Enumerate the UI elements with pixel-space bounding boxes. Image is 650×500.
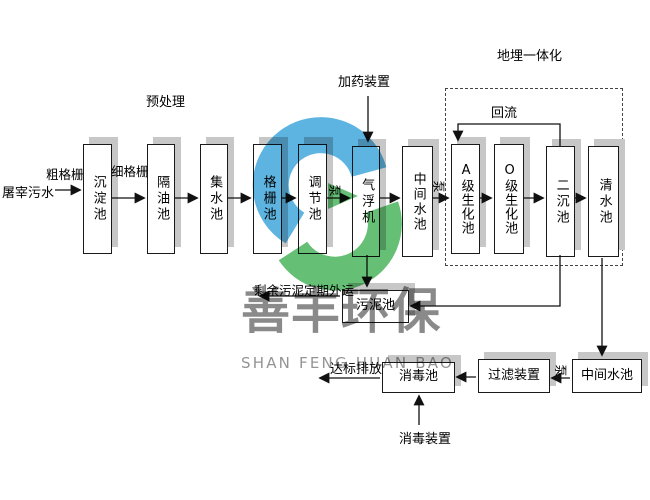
tank-regulation: 调节池	[298, 144, 327, 254]
tank-o-biochemical: O级生化池	[494, 144, 524, 254]
tank-label: 二沉池	[552, 178, 568, 226]
label-fine-screen: 细格栅	[111, 161, 149, 180]
label-disinfection-device: 消毒装置	[399, 428, 451, 447]
label-pretreatment: 预处理	[146, 91, 185, 110]
tank-label: 沉淀池	[89, 175, 105, 223]
tank-clear-water: 清水池	[588, 146, 619, 257]
label-sludge-out: 剩余污泥定期外运	[254, 280, 354, 299]
tank-label: A级生化池	[457, 163, 473, 235]
label-pump-2: 泵	[431, 180, 448, 192]
label-discharge: 达标排放	[330, 358, 382, 377]
tank-label: 中间水池	[409, 172, 425, 232]
tank-label: 格栅池	[259, 175, 275, 223]
label-reflux: 回流	[491, 102, 517, 121]
label-influent: 屠宰污水	[2, 182, 54, 201]
tank-collection: 集水池	[200, 144, 228, 254]
label-coarse-screen: 粗格栅	[46, 164, 84, 183]
tank-air-flotation: 气浮机	[352, 146, 380, 257]
tank-label: 隔油池	[153, 175, 169, 223]
process-flow-diagram: 沉淀池 隔油池 集水池 格栅池 调节池 气浮机 中间水池 A级生化池 O级生化池…	[0, 0, 650, 500]
tank-label: 中间水池	[581, 368, 633, 384]
tank-secondary-sedimentation: 二沉池	[546, 146, 575, 257]
tank-a-biochemical: A级生化池	[451, 144, 480, 254]
label-pump-3: 泵	[553, 364, 570, 376]
tank-label: 过滤装置	[488, 368, 540, 384]
label-dosing-device: 加药装置	[338, 71, 390, 90]
label-pump-1: 泵	[327, 184, 344, 196]
tank-intermediate-2: 中间水池	[572, 359, 642, 393]
tank-label: 调节池	[304, 175, 320, 223]
tank-label: O级生化池	[501, 163, 517, 235]
tank-label: 污泥池	[356, 298, 395, 314]
tank-oil-separation: 隔油池	[147, 144, 175, 254]
label-buried-integration: 地埋一体化	[497, 45, 562, 64]
tank-screen: 格栅池	[253, 144, 282, 254]
tank-disinfection: 消毒池	[382, 362, 455, 393]
tank-intermediate: 中间水池	[402, 146, 433, 257]
tank-label: 清水池	[595, 178, 611, 226]
tank-label: 消毒池	[399, 369, 438, 385]
tank-filter-device: 过滤装置	[478, 359, 550, 393]
tank-label: 集水池	[206, 175, 222, 223]
tank-sedimentation: 沉淀池	[83, 144, 112, 254]
tank-label: 气浮机	[358, 178, 374, 226]
